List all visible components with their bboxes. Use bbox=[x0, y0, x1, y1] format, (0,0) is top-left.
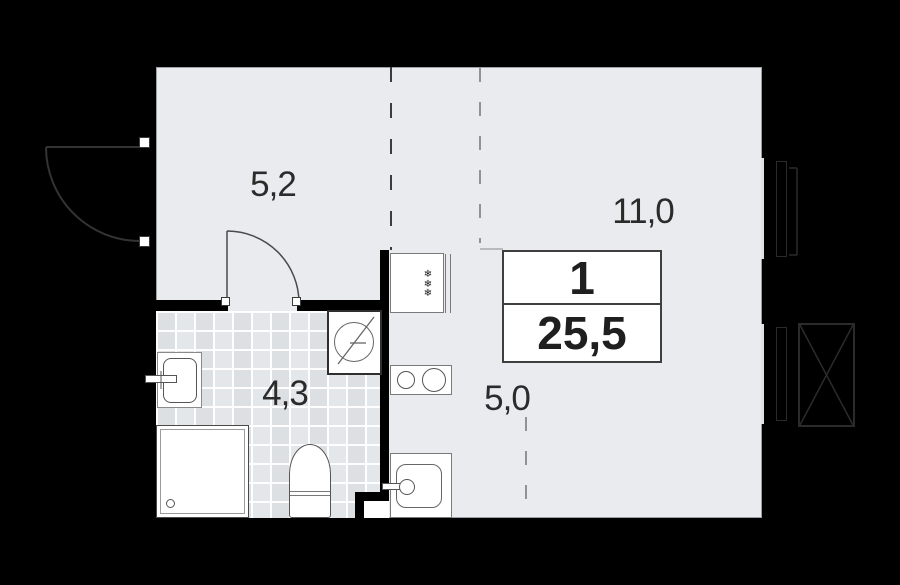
kitchen-sink-faucet-icon bbox=[399, 479, 415, 495]
unit-total-area: 25,5 bbox=[504, 305, 660, 361]
entrance-door-swing-icon bbox=[46, 147, 140, 241]
entrance-door-jamb-bottom bbox=[139, 236, 150, 247]
living-area-label: 11,0 bbox=[612, 192, 674, 232]
floor-plan-canvas: ❄ ❄ ❄ 1 25,5 5,2 11,0 4,3 5,0 bbox=[0, 0, 900, 585]
bathroom-door-jamb-right bbox=[292, 297, 301, 306]
stove-burner-large-icon bbox=[422, 368, 446, 392]
window-opening-upper bbox=[761, 158, 764, 259]
window-upper-frame-icon bbox=[776, 161, 787, 257]
toilet-seat-line bbox=[290, 491, 330, 492]
unit-rooms-count: 1 bbox=[504, 252, 660, 305]
shower-drain-icon bbox=[166, 499, 175, 508]
snowflake-icon: ❄ ❄ ❄ bbox=[421, 270, 435, 299]
toilet bbox=[289, 444, 331, 518]
wall-kitchen-divider bbox=[380, 250, 389, 501]
window-opening-lower bbox=[761, 324, 764, 424]
bathroom-sink-faucet-icon bbox=[145, 375, 177, 383]
snowflake-icon: ❄ bbox=[421, 289, 435, 299]
ac-basket-icon bbox=[798, 323, 855, 427]
refrigerator-door-lines bbox=[445, 254, 451, 313]
entrance-door-jamb-top bbox=[139, 137, 150, 148]
shaft-pocket bbox=[364, 501, 389, 518]
toilet-seat-line bbox=[290, 495, 330, 496]
unit-info-box: 1 25,5 bbox=[502, 250, 662, 363]
refrigerator bbox=[390, 253, 444, 313]
kitchen-area-label: 5,0 bbox=[484, 379, 530, 419]
washing-machine-door-icon bbox=[334, 322, 374, 362]
bathroom-door-jamb-left bbox=[221, 297, 230, 306]
wall-bathroom-top-left bbox=[150, 300, 228, 311]
window-lower-frame-icon bbox=[776, 327, 787, 421]
bathroom-area-label: 4,3 bbox=[262, 374, 308, 414]
window-upper-pane-line bbox=[789, 168, 797, 255]
hallway-area-label: 5,2 bbox=[250, 165, 296, 205]
wall-shaft-vertical bbox=[355, 492, 364, 518]
stove-burner-small-icon bbox=[397, 371, 415, 389]
